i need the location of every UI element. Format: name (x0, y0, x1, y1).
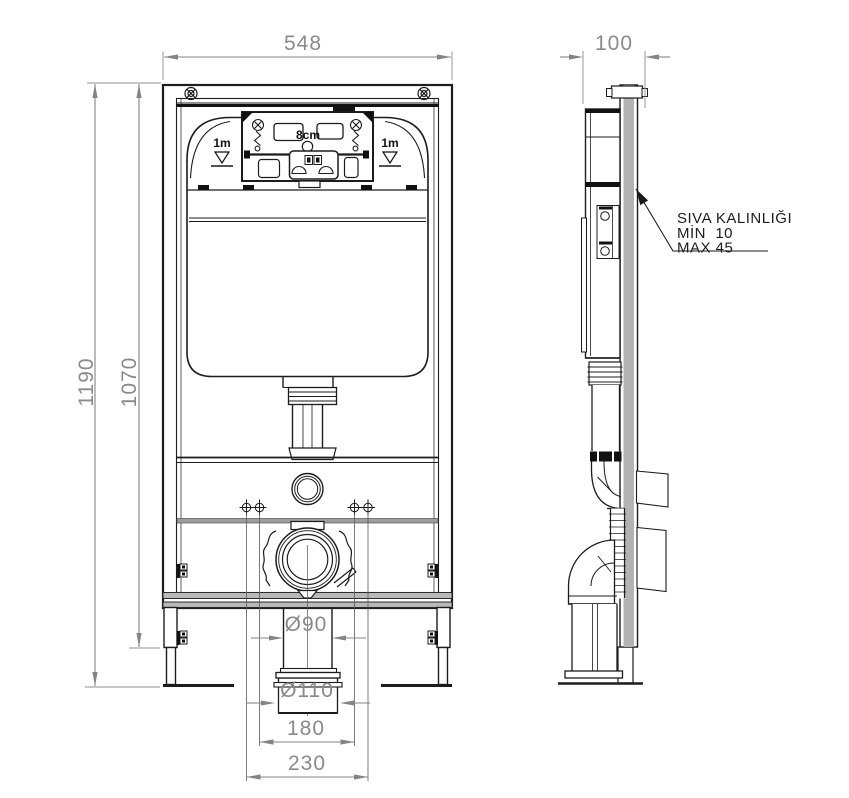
dimension-d90: Ø90 (251, 613, 366, 641)
dimension-548: 548 (163, 32, 452, 80)
note-line3: MAX 45 (677, 240, 733, 257)
wall-anchor-brackets (637, 471, 669, 592)
dim-180-label: 180 (287, 717, 325, 740)
dim-100-label: 100 (595, 32, 633, 55)
flush-access-box: 8cm (242, 112, 373, 188)
dim-d110-label: Ø110 (280, 679, 334, 702)
dimension-1070: 1070 (118, 84, 160, 648)
drawing-canvas: 1m 1m (0, 0, 849, 798)
dim-1190-label: 1190 (75, 357, 98, 406)
dimension-230: 230 (247, 752, 369, 780)
dim-1070-label: 1070 (118, 357, 141, 408)
technical-drawing: 1m 1m (0, 0, 849, 798)
side-view (558, 85, 668, 684)
level-label-left: 1m (213, 136, 230, 150)
dim-230-label: 230 (288, 752, 326, 775)
dim-548-label: 548 (284, 32, 322, 55)
offset-label: 8cm (296, 128, 320, 142)
plaster-thickness-note: SIVA KALINLIĞI MİN 10 MAX 45 (636, 189, 792, 257)
dim-d90-label: Ø90 (285, 613, 328, 636)
dimension-180: 180 (260, 717, 355, 745)
level-label-right: 1m (381, 136, 398, 150)
water-inlet-port (292, 474, 323, 505)
cistern-side-profile (582, 109, 621, 358)
